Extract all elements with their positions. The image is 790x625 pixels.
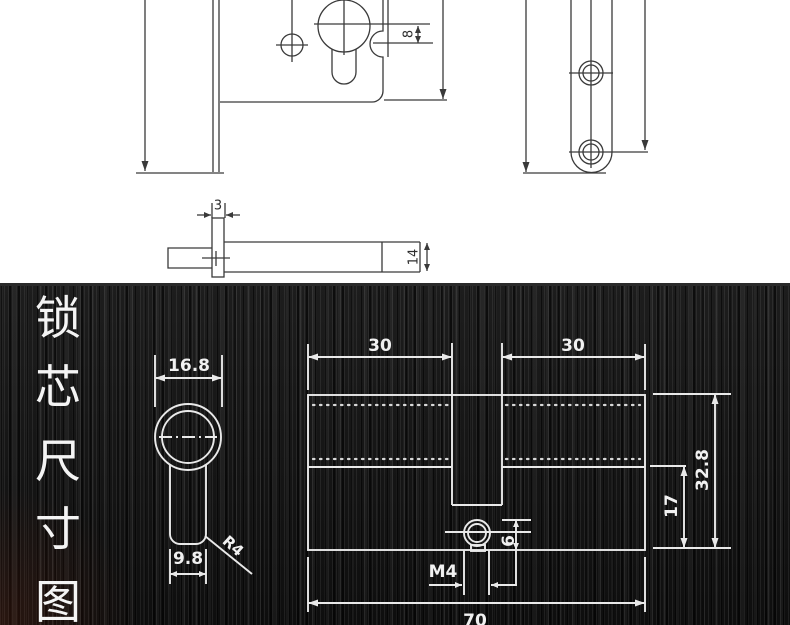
strike-plate-view [523, 0, 648, 173]
cylinder-body [308, 395, 645, 550]
cylinder-side-view: 30 30 32.8 17 6 M4 70 [308, 336, 731, 625]
bracket-plate-view: 8 [136, 0, 447, 173]
bolt-side-view: 3 14 [168, 199, 427, 278]
technical-drawing-canvas: 8 [0, 0, 790, 625]
dim-label-right-half: 30 [561, 336, 585, 356]
lock-dimension-diagram: 锁 芯 尺 寸 图 [0, 0, 790, 625]
dim-label-left-half: 30 [368, 336, 392, 356]
dim-label-notch-offset: 8 [402, 30, 417, 38]
flange [212, 218, 224, 277]
dim-label-bolt-height: 14 [407, 249, 422, 266]
dim-label-total-length: 70 [463, 611, 487, 625]
dim-label-screw-offset: 6 [499, 535, 519, 547]
dim-label-head-diameter: 16.8 [168, 356, 210, 376]
dim-label-screw-thread: M4 [429, 562, 458, 582]
dim-label-flange-thickness: 3 [214, 199, 222, 214]
cylinder-profile-body [170, 465, 206, 544]
dim-label-total-height: 32.8 [693, 449, 713, 491]
dim-label-body-height: 17 [662, 494, 682, 518]
dim-label-body-width: 9.8 [173, 549, 203, 569]
dim-label-corner-radius: R4 [219, 532, 247, 560]
cylinder-front-view: 16.8 9.8 R4 [155, 355, 252, 584]
